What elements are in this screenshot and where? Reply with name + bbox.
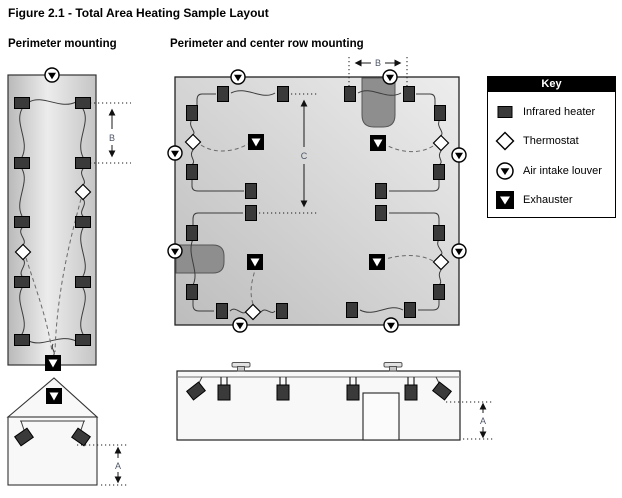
louver-marker	[231, 70, 245, 84]
key-item-thermostat: Thermostat	[495, 131, 615, 151]
heater-marker	[347, 303, 358, 318]
louver-marker	[384, 318, 398, 332]
heater-marker	[434, 285, 445, 300]
heater-marker	[187, 285, 198, 300]
heater-marker	[434, 226, 445, 241]
door	[363, 393, 399, 440]
heater-marker	[15, 217, 30, 228]
key-header: Key	[488, 77, 615, 92]
exhauster-icon	[495, 190, 515, 210]
dimension-label-b: B	[375, 58, 381, 68]
heater-marker	[277, 304, 288, 319]
heater-marker	[434, 165, 445, 180]
key-item-infrared-heater: Infrared heater	[495, 102, 615, 122]
thermostat-icon	[495, 131, 515, 151]
roofvent-marker	[232, 363, 250, 372]
heater-marker	[278, 87, 289, 102]
heater-marker	[15, 158, 30, 169]
louver-marker	[168, 146, 182, 160]
heater-marker	[246, 184, 257, 199]
key-item-label: Air intake louver	[523, 165, 602, 177]
key-item-label: Thermostat	[523, 135, 579, 147]
middle-plan-floor	[175, 77, 459, 325]
heater-marker	[187, 165, 198, 180]
heater-marker	[76, 98, 91, 109]
dimension-label-c: C	[301, 151, 308, 161]
heater-marker	[15, 335, 30, 346]
exhauster-marker	[370, 135, 386, 151]
exhauster-marker	[369, 254, 385, 270]
roofvent-marker	[384, 363, 402, 372]
exhauster-marker	[247, 254, 263, 270]
heater-marker	[76, 277, 91, 288]
middle-plan-view: C B	[168, 57, 466, 332]
figure-page: Figure 2.1 - Total Area Heating Sample L…	[0, 0, 622, 498]
exhauster-marker	[248, 134, 264, 150]
heater-marker	[76, 335, 91, 346]
obstruction-top	[362, 78, 395, 127]
infrared-heater-icon	[495, 102, 515, 122]
heater-marker	[345, 87, 356, 102]
key-item-label: Exhauster	[523, 194, 573, 206]
heater-marker	[404, 87, 415, 102]
exhauster-marker	[45, 355, 61, 371]
key-item-exhauster: Exhauster	[495, 190, 615, 210]
heater-marker	[218, 87, 229, 102]
heater-marker	[15, 98, 30, 109]
heater-marker	[435, 106, 446, 121]
louver-marker	[45, 68, 59, 82]
left-plan-view: B	[8, 68, 131, 371]
heater-marker	[376, 184, 387, 199]
louver-marker	[383, 70, 397, 84]
key-legend: Key Infrared heater Thermostat Air intak…	[487, 76, 616, 218]
heater-marker	[15, 277, 30, 288]
dimension-label-a: A	[480, 416, 486, 426]
heater-marker	[76, 158, 91, 169]
heater-marker	[405, 303, 416, 318]
louver-marker	[452, 148, 466, 162]
heater-marker	[187, 226, 198, 241]
heater-marker	[246, 206, 257, 221]
obstruction-left	[176, 245, 224, 273]
louver-marker	[168, 244, 182, 258]
building-body	[8, 417, 97, 485]
key-item-air-intake-louver: Air intake louver	[495, 161, 615, 181]
exhauster-marker	[46, 388, 62, 404]
heater-marker	[187, 106, 198, 121]
key-item-label: Infrared heater	[523, 106, 595, 118]
building-section	[177, 371, 460, 440]
louver-marker	[452, 244, 466, 258]
dimension-label-b: B	[109, 133, 115, 143]
dimension-label-a: A	[115, 461, 121, 471]
louver-marker	[233, 318, 247, 332]
heater-marker	[76, 217, 91, 228]
heater-marker	[376, 206, 387, 221]
left-elevation-view: A	[8, 378, 129, 485]
heater-marker	[217, 304, 228, 319]
figure-diagram: B A	[0, 0, 622, 498]
middle-elevation-view: A	[177, 363, 494, 441]
air-intake-louver-icon	[495, 161, 515, 181]
